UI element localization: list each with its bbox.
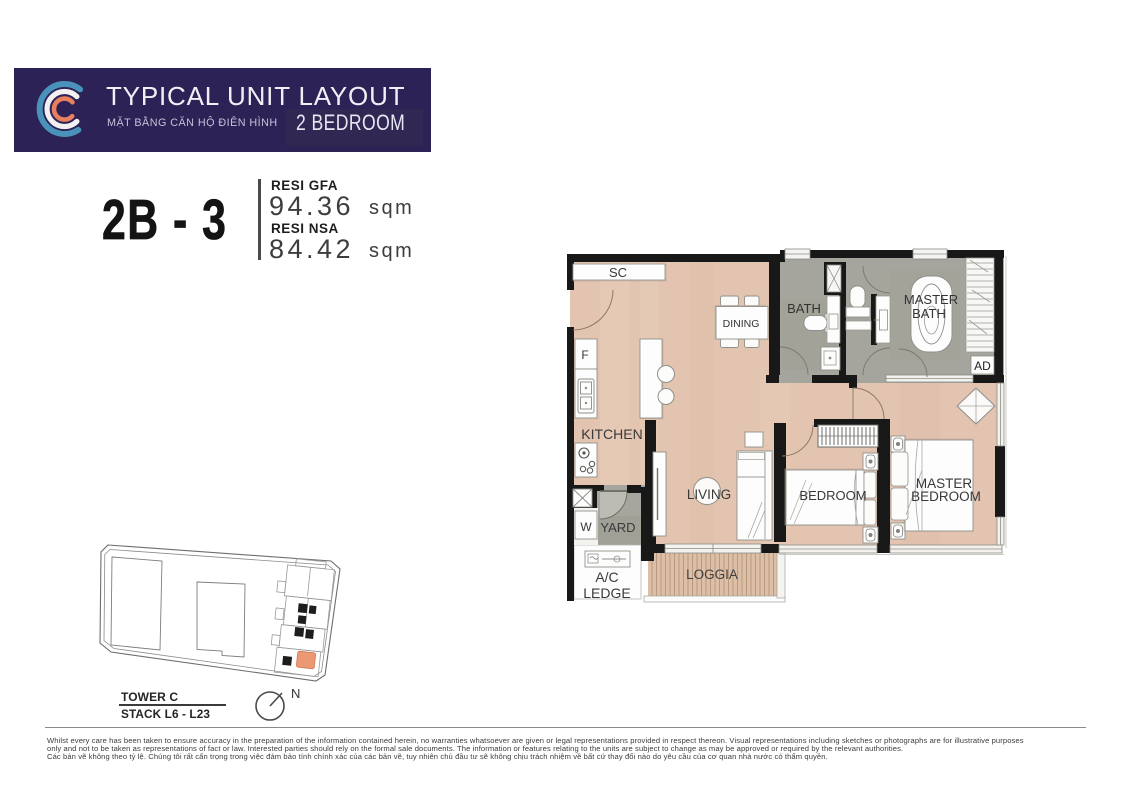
svg-text:F: F bbox=[581, 348, 588, 362]
svg-text:N: N bbox=[291, 686, 300, 701]
svg-text:MASTER: MASTER bbox=[904, 292, 958, 307]
svg-text:SC: SC bbox=[609, 265, 627, 280]
svg-text:A/C: A/C bbox=[595, 569, 618, 585]
svg-text:LOGGIA: LOGGIA bbox=[686, 567, 738, 582]
svg-text:LIVING: LIVING bbox=[687, 487, 731, 502]
svg-text:AD: AD bbox=[974, 359, 991, 373]
svg-text:KITCHEN: KITCHEN bbox=[581, 426, 642, 442]
svg-text:YARD: YARD bbox=[600, 520, 635, 535]
svg-text:LEDGE: LEDGE bbox=[583, 585, 630, 601]
svg-text:BATH: BATH bbox=[912, 306, 946, 321]
svg-text:DINING: DINING bbox=[723, 318, 760, 330]
svg-text:BEDROOM: BEDROOM bbox=[911, 489, 981, 504]
svg-text:BEDROOM: BEDROOM bbox=[799, 488, 866, 503]
svg-text:BATH: BATH bbox=[787, 301, 821, 316]
svg-text:W: W bbox=[580, 520, 592, 534]
